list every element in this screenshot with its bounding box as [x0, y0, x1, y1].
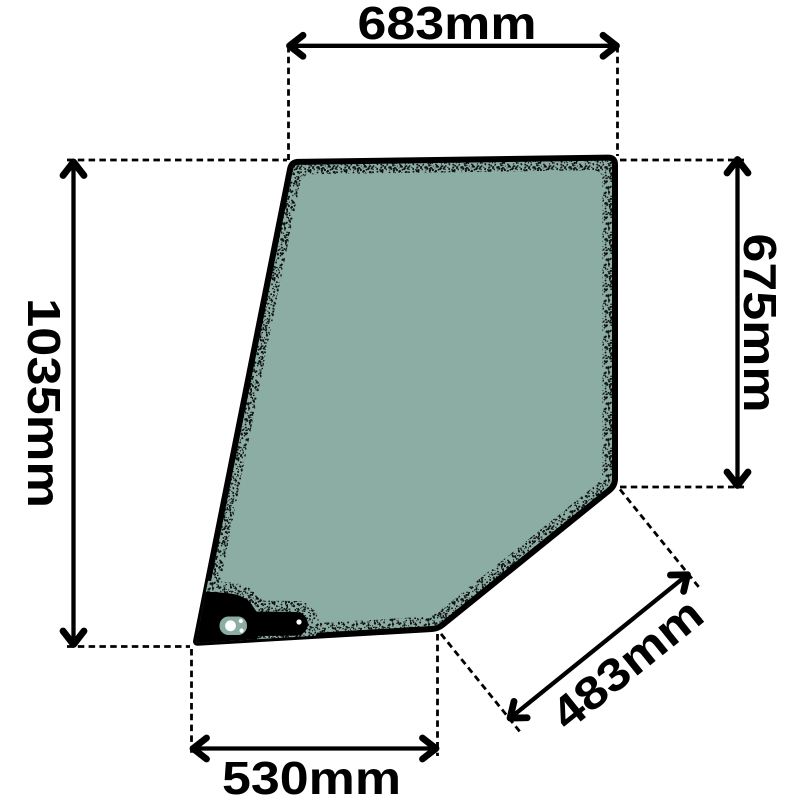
- svg-text:1035mm: 1035mm: [18, 298, 70, 508]
- svg-text:675mm: 675mm: [734, 234, 786, 413]
- svg-text:530mm: 530mm: [222, 752, 401, 800]
- svg-text:683mm: 683mm: [358, 0, 537, 49]
